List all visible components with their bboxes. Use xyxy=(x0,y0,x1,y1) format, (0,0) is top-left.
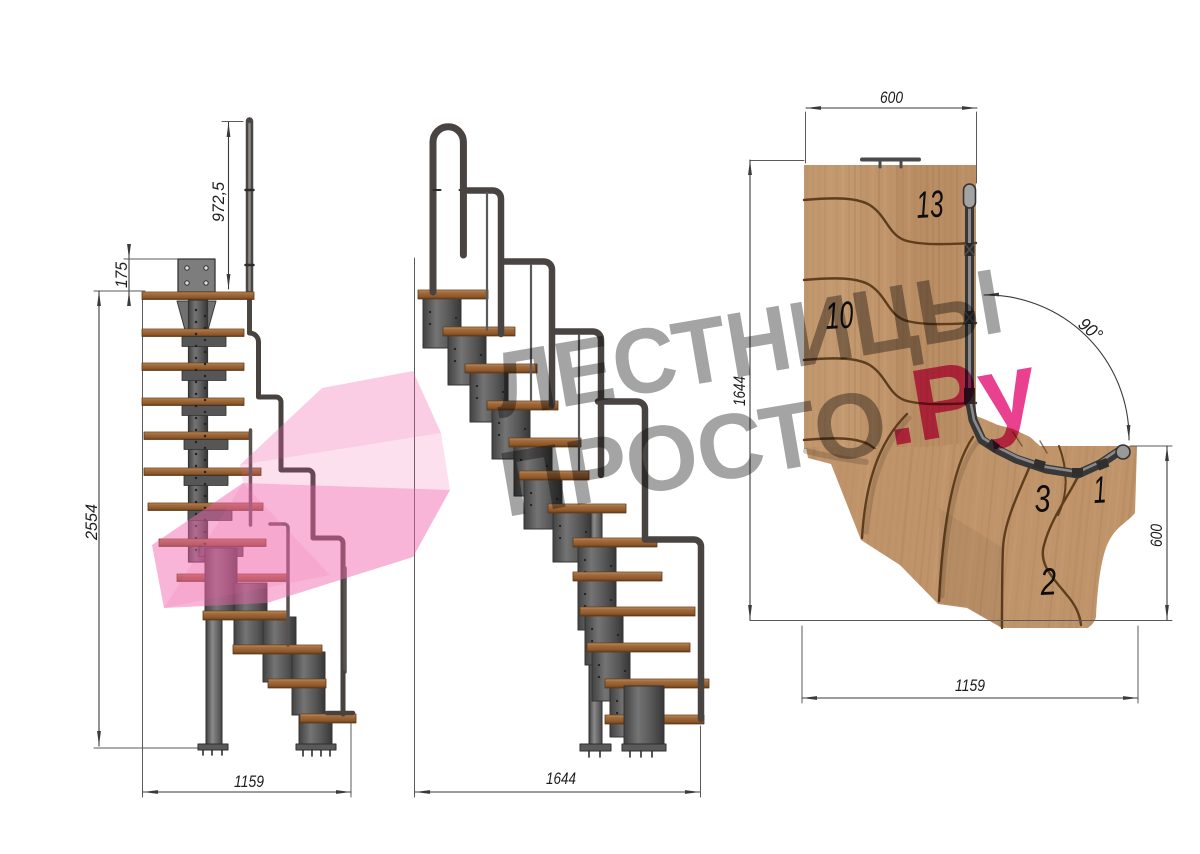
svg-text:1: 1 xyxy=(1092,469,1107,512)
svg-text:1159: 1159 xyxy=(234,772,264,791)
svg-text:1159: 1159 xyxy=(955,676,985,695)
svg-text:600: 600 xyxy=(880,88,903,107)
svg-text:972,5: 972,5 xyxy=(209,181,228,222)
svg-text:13: 13 xyxy=(915,184,944,227)
svg-text:2: 2 xyxy=(1039,561,1058,604)
svg-text:1644: 1644 xyxy=(546,769,576,788)
svg-text:175: 175 xyxy=(112,262,131,288)
svg-text:3: 3 xyxy=(1033,478,1051,521)
svg-text:2554: 2554 xyxy=(82,504,101,541)
svg-text:600: 600 xyxy=(1147,524,1166,547)
